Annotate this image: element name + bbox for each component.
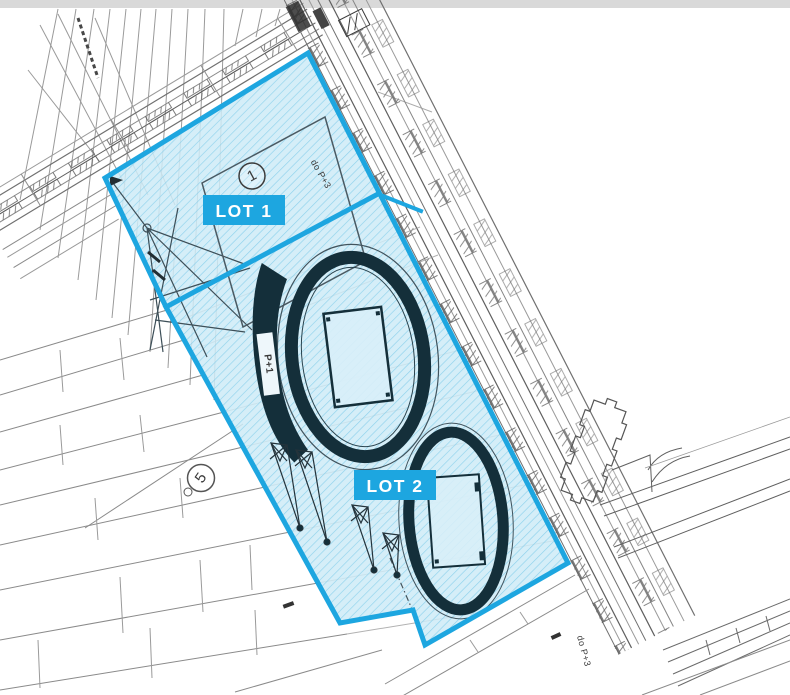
lot1-badge: LOT 1 [203,195,285,225]
lot2-label: LOT 2 [366,476,423,496]
lot2-badge: LOT 2 [354,470,436,500]
stadium-field [323,307,392,407]
top-window-strip [0,0,790,8]
site-plan-drawing: P+1 [0,0,790,695]
parcel-1-marker: 1 [239,163,265,189]
site-plan-page: P+1 [0,0,790,695]
lot1-label: LOT 1 [215,201,272,221]
